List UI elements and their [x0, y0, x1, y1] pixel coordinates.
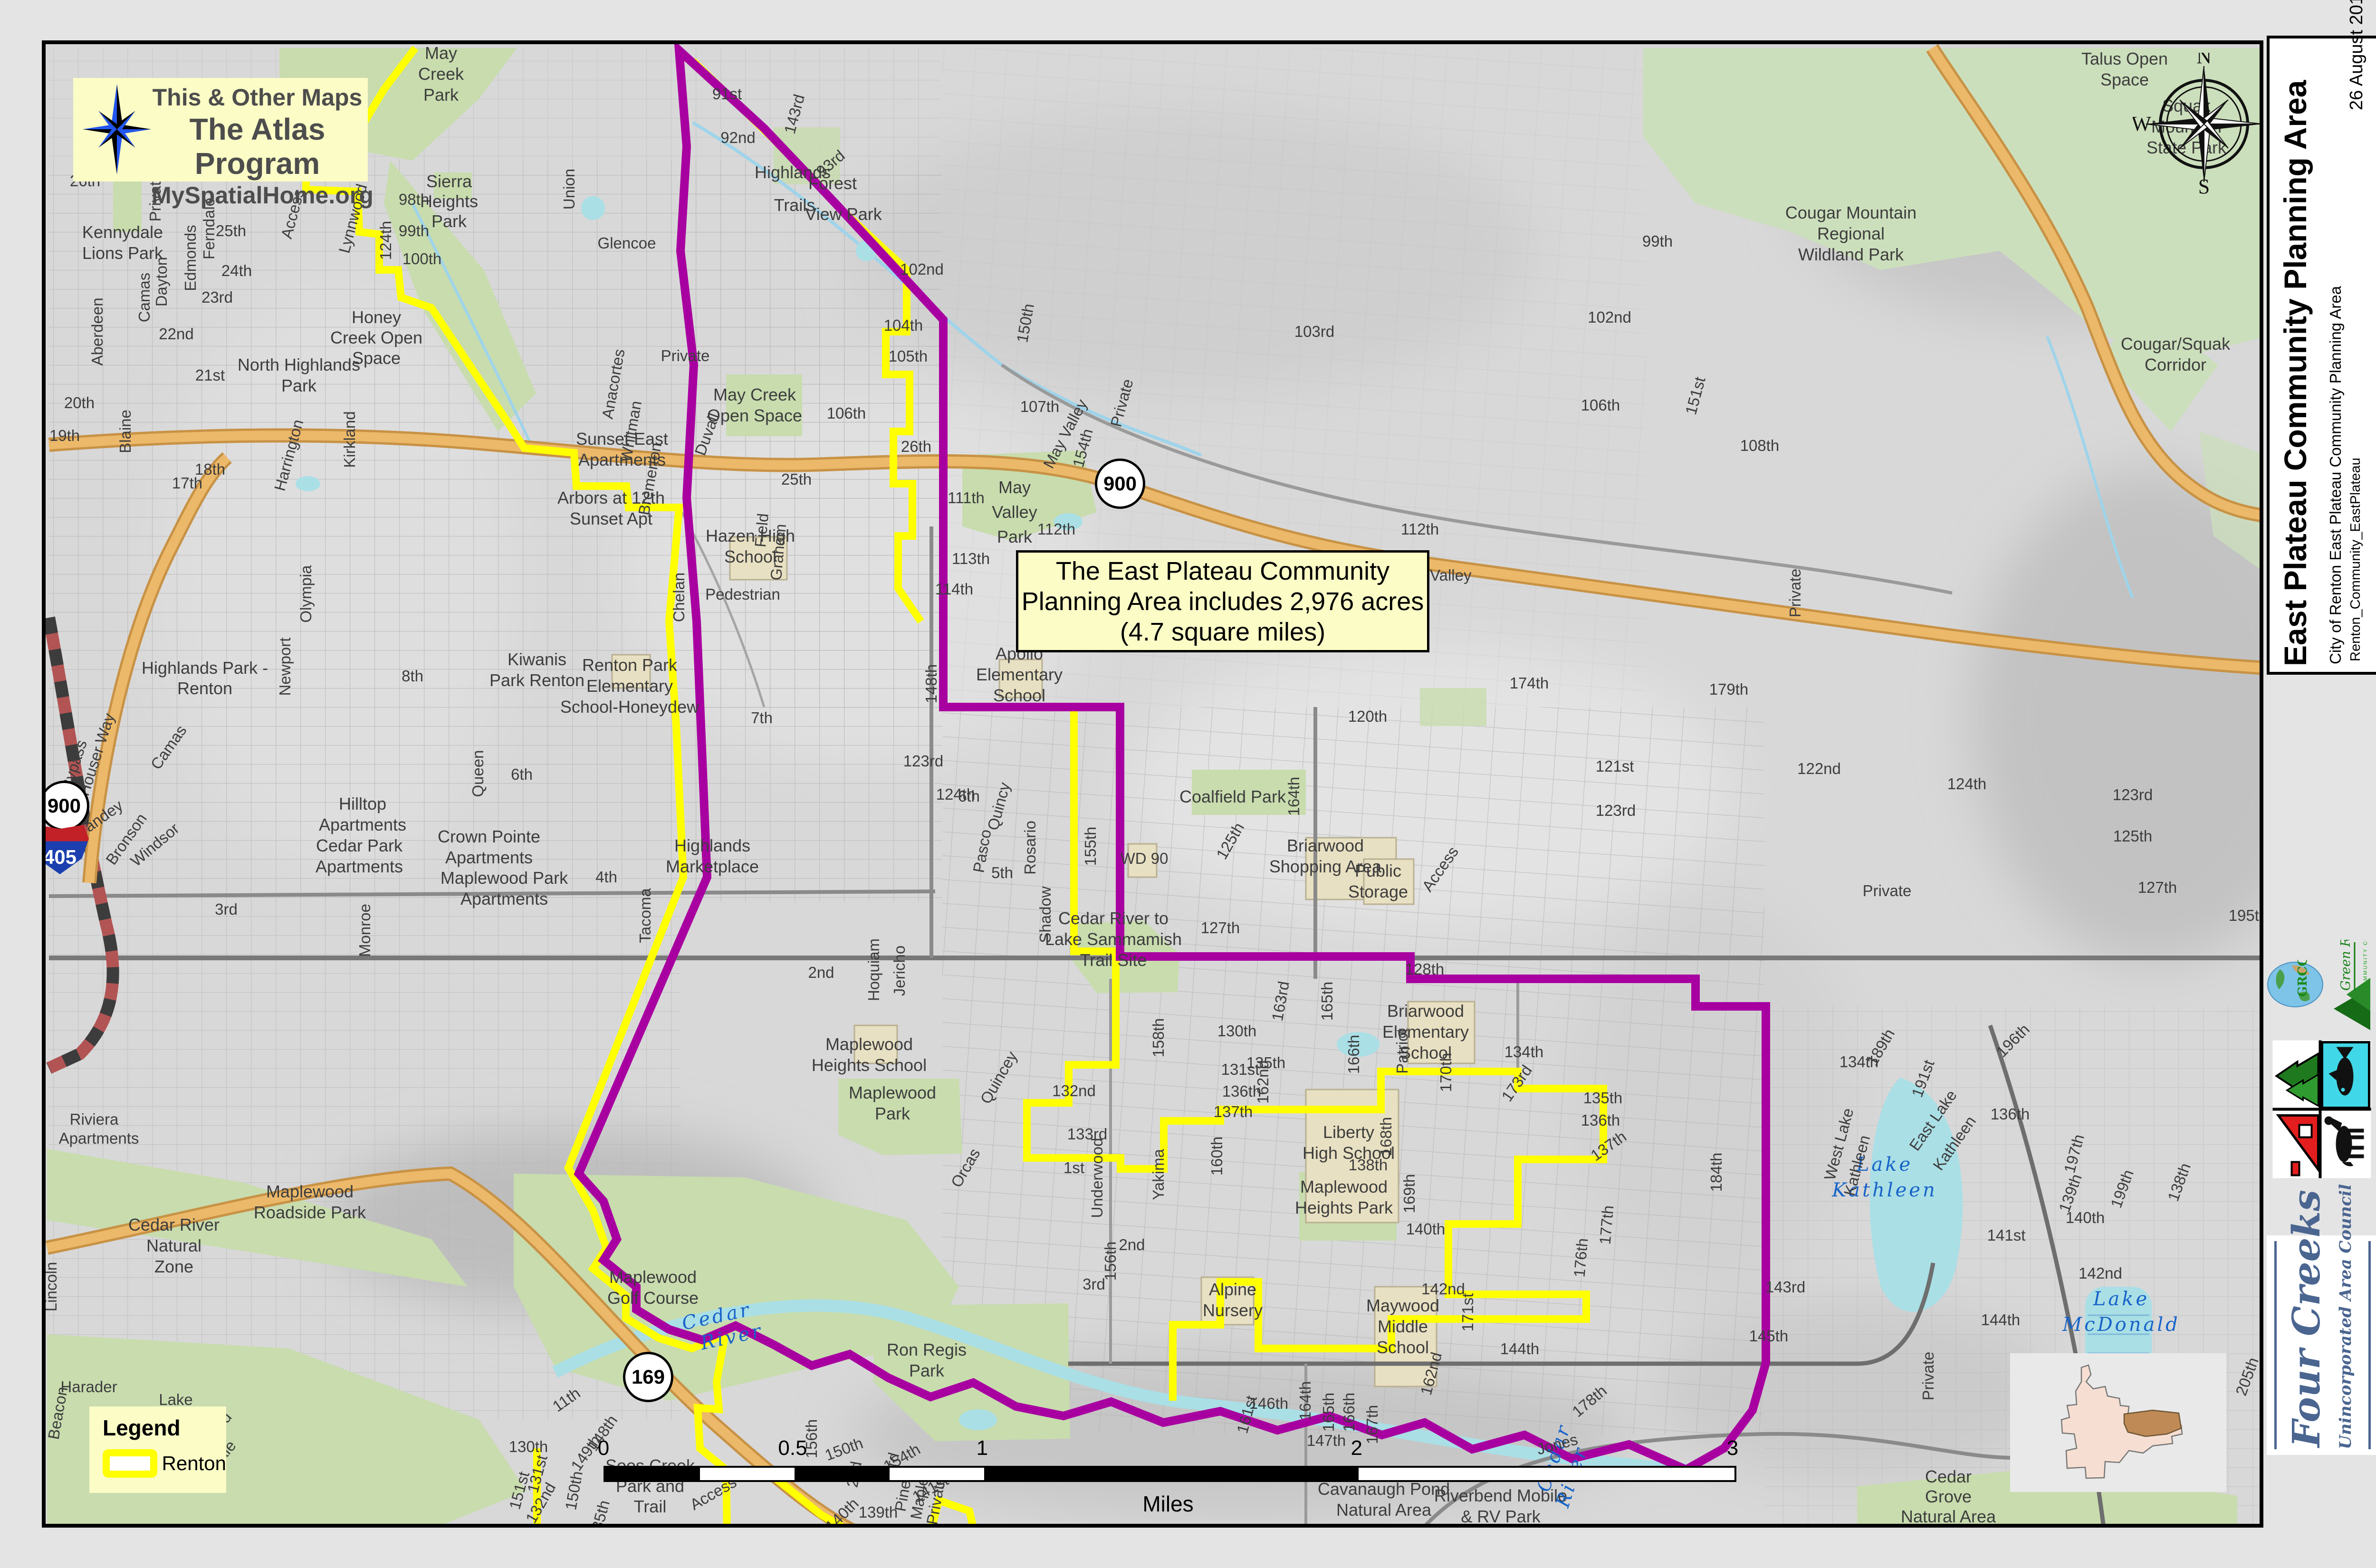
- callout-line3: (4.7 square miles): [1018, 617, 1427, 647]
- map-label: 136th: [1222, 1082, 1262, 1100]
- map-label: Cougar/Squak: [2121, 334, 2230, 354]
- callout-line2: Planning Area includes 2,976 acres: [1018, 586, 1427, 617]
- map-label: Apartments: [460, 889, 548, 909]
- map-label: 112th: [1401, 520, 1439, 538]
- map-label: 25th: [216, 222, 246, 240]
- map-label: 7th: [751, 709, 773, 727]
- map-label: 128th: [1405, 960, 1445, 978]
- scale-unit: Miles: [1142, 1491, 1193, 1517]
- map-label: 25th: [781, 470, 812, 488]
- map-label: Public: [1355, 861, 1401, 881]
- map-label: 107th: [1020, 398, 1060, 416]
- map-label: Park Renton: [489, 670, 584, 690]
- grcc-gis-logo: GRCC GIS: [2266, 960, 2328, 1010]
- map-title: East Plateau Community Planning Area: [2277, 80, 2313, 666]
- map-label: 136th: [1581, 1111, 1620, 1129]
- map-label: Pedestrian: [705, 585, 780, 603]
- map-label: Newport: [276, 638, 294, 696]
- map-label: Heights Park: [1295, 1198, 1393, 1218]
- map-label: 144th: [1981, 1311, 2021, 1329]
- map-label: Renton Park: [582, 655, 677, 675]
- map-label: 3rd: [215, 900, 238, 918]
- legend-item-label: Renton: [162, 1452, 226, 1475]
- map-label: 4th: [595, 868, 617, 886]
- green-river-college: COMMUNITY COLLEGE: [2363, 940, 2368, 991]
- map-label: Maplewood: [849, 1083, 936, 1103]
- map-label: 158th: [1150, 1018, 1168, 1058]
- compass-n: N: [2196, 53, 2212, 68]
- map-label: Rosario: [1021, 821, 1039, 875]
- map-label: Honey: [352, 307, 401, 327]
- map-label: View Park: [805, 204, 881, 224]
- map-label: Apartments: [445, 848, 533, 868]
- map-label: 166th: [1340, 1393, 1358, 1432]
- map-filename: Renton_Community_EastPlateau: [2348, 458, 2364, 661]
- map-label: 179th: [1709, 680, 1749, 698]
- green-river-name: Green River: [2338, 940, 2353, 991]
- map-label: 19th: [49, 427, 80, 445]
- map-label: Private: [1919, 1352, 1937, 1401]
- scale-segment: [795, 1468, 890, 1480]
- map-label: Cedar River to: [1058, 908, 1169, 928]
- map-label: Wildland Park: [1798, 245, 1904, 265]
- map-label: WD 90: [1121, 850, 1169, 868]
- map-label: 99th: [399, 222, 429, 240]
- map-label: 127th: [1201, 919, 1240, 937]
- state-route-shield-900: 900: [1095, 459, 1145, 509]
- scale-segment: [1359, 1468, 1734, 1480]
- map-label: Apartments: [316, 857, 403, 877]
- map-label: 155th: [1082, 827, 1100, 866]
- map-label: 138th: [1349, 1156, 1388, 1174]
- map-label: 148th: [922, 664, 940, 704]
- map-label: Renton: [177, 679, 232, 698]
- map-label: 124th: [377, 221, 395, 260]
- map-document: MayCreekParkSierraHeightsParkHoneyCreek …: [0, 0, 2376, 1568]
- scale-segment: [700, 1468, 795, 1480]
- map-label: Cougar Mountain: [1785, 203, 1916, 223]
- map-label: 123rd: [1596, 802, 1636, 820]
- map-label: Crown Pointe: [438, 827, 540, 847]
- map-label: Edmonds: [182, 225, 200, 291]
- map-label: 103rd: [1294, 323, 1334, 341]
- map-label: Cedar: [1925, 1467, 1972, 1487]
- map-label: May: [998, 478, 1031, 497]
- map-label: 144th: [1500, 1340, 1540, 1358]
- rule-left: [2274, 1241, 2277, 1449]
- grcc-gis-text: GRCC GIS: [2296, 960, 2310, 997]
- map-label: 130th: [509, 1438, 548, 1456]
- map-label: 122nd: [1797, 760, 1841, 778]
- map-label: 168th: [1377, 1117, 1395, 1157]
- compass-rose: N E S W: [2133, 53, 2263, 195]
- map-label: 120th: [1348, 708, 1388, 726]
- map-label: 127th: [2138, 879, 2177, 897]
- map-label: Highlands: [674, 836, 750, 856]
- map-label: Jericho: [891, 946, 909, 996]
- map-label: North Highlands: [238, 355, 360, 375]
- map-label: Chelan: [670, 573, 688, 622]
- scale-segment: [984, 1468, 1359, 1480]
- map-label: 8th: [402, 667, 423, 685]
- map-label: 114th: [935, 580, 973, 598]
- map-label: Regional: [1817, 224, 1885, 244]
- atlas-line1: This & Other Maps: [152, 83, 363, 112]
- map-label: Cedar Park: [316, 836, 402, 856]
- map-label: Kennydale: [82, 222, 163, 242]
- map-label: 165th: [1318, 982, 1336, 1021]
- map-label: May Creek: [713, 385, 796, 405]
- legend-title: Legend: [103, 1415, 226, 1441]
- scale-tick: 0.5: [778, 1436, 807, 1460]
- map-label: 143rd: [1765, 1278, 1805, 1296]
- map-label: 91st: [712, 85, 742, 103]
- map-label: Briarwood: [1287, 836, 1364, 856]
- map-label: Park: [909, 1361, 944, 1381]
- map-label: Middle: [1378, 1317, 1428, 1337]
- map-label: Camas: [135, 273, 153, 323]
- map-date: 26 August 2014: [2347, 0, 2367, 110]
- map-label: 171st: [1459, 1293, 1477, 1332]
- atlas-logo-box: This & Other Maps The Atlas Program MySp…: [73, 78, 368, 182]
- map-label: 5th: [991, 864, 1013, 882]
- scale-tick: 1: [977, 1436, 988, 1460]
- scale-tick: 3: [1727, 1436, 1738, 1460]
- map-label: 142nd: [2079, 1264, 2122, 1282]
- map-label: Maplewood: [1300, 1177, 1388, 1197]
- map-graphics: [46, 44, 2263, 1528]
- map-label: Park: [997, 527, 1032, 547]
- map-label: Riviera: [70, 1110, 119, 1128]
- map-label: 2nd: [808, 964, 834, 982]
- map-label: 24th: [221, 262, 252, 280]
- map-label: Apartments: [319, 815, 406, 835]
- map-label: Ron Regis: [887, 1340, 967, 1360]
- state-route-shield-169: 169: [623, 1352, 673, 1402]
- compass-w: W: [2133, 112, 2151, 135]
- map-label: Glencoe: [598, 234, 656, 252]
- map-label: 137th: [1214, 1103, 1253, 1121]
- map-label: Forest: [808, 173, 857, 193]
- map-label: Maplewood: [266, 1182, 354, 1202]
- map-label: 26th: [901, 438, 931, 456]
- map-label: Patriot: [1393, 1028, 1411, 1073]
- map-label: 177th: [1596, 1205, 1617, 1245]
- map-label: 104th: [884, 316, 923, 335]
- map-label: Heights School: [812, 1055, 927, 1075]
- map-label: 135th: [1246, 1054, 1286, 1072]
- map-label: Olympia: [297, 565, 315, 622]
- map-label: 106th: [827, 404, 866, 422]
- map-label: 17th: [172, 474, 202, 492]
- map-label: 105th: [889, 347, 928, 365]
- map-label: School-Honeydew: [560, 697, 699, 717]
- map-label: Dayton: [153, 257, 171, 307]
- map-label: Zone: [154, 1257, 193, 1277]
- map-label: 102nd: [1588, 308, 1631, 326]
- renton-boundary-symbol: [103, 1449, 157, 1478]
- map-label: 184th: [1707, 1153, 1725, 1192]
- map-label: Trail Site: [1080, 950, 1147, 970]
- map-label: Grove: [1925, 1487, 1972, 1507]
- scale-segment: [605, 1468, 700, 1480]
- map-label: 140th: [2066, 1209, 2105, 1227]
- map-label: Private: [1863, 882, 1912, 900]
- map-label: 124th: [1947, 775, 1987, 793]
- map-label: Hoquiam: [865, 938, 883, 1001]
- map-label: 98th: [399, 191, 429, 209]
- map-label: 140th: [1406, 1220, 1446, 1238]
- map-label: 21st: [195, 366, 225, 384]
- map-label: 165th: [1320, 1393, 1338, 1432]
- atlas-line2: The Atlas Program: [152, 112, 363, 181]
- scale-tick: 0: [598, 1436, 609, 1460]
- map-label: 142nd: [1421, 1280, 1465, 1298]
- map-label: Creek: [418, 64, 464, 84]
- map-label: Sierra: [426, 172, 472, 191]
- map-label: Golf Course: [607, 1288, 699, 1308]
- compass-s: S: [2198, 175, 2210, 195]
- map-label: Nursery: [1203, 1300, 1263, 1320]
- map-label: 135th: [1583, 1089, 1623, 1107]
- map-label: 176th: [1570, 1237, 1591, 1278]
- map-label: 134th: [1504, 1043, 1544, 1061]
- map-label: 124th: [936, 785, 976, 803]
- map-label: Kiwanis: [508, 650, 566, 669]
- map-label: Private: [661, 347, 710, 365]
- map-label: Yakima: [1150, 1149, 1168, 1200]
- map-label: 102nd: [900, 260, 944, 278]
- map-label: McDonald: [2062, 1314, 2180, 1336]
- map-label: Elementary: [976, 665, 1063, 685]
- map-label: Park: [875, 1104, 910, 1124]
- map-label: 125th: [2113, 827, 2153, 845]
- scale-segment: [890, 1468, 984, 1480]
- map-label: 164th: [1285, 777, 1303, 816]
- map-label: Private: [1786, 569, 1804, 618]
- green-river-college-logo: Green River COMMUNITY COLLEGE: [2325, 940, 2376, 1033]
- map-label: Lake Sammamish: [1045, 929, 1182, 949]
- map-label: Park: [423, 85, 459, 105]
- map-label: Corridor: [2145, 355, 2206, 375]
- map-label: 166th: [1345, 1035, 1363, 1074]
- map-subtitle: City of Renton East Plateau Community Pl…: [2327, 286, 2345, 664]
- map-label: 169th: [1400, 1174, 1418, 1214]
- map-label: Queen: [469, 750, 487, 797]
- map-label: 92nd: [720, 129, 755, 147]
- callout-line1: The East Plateau Community: [1018, 556, 1427, 586]
- map-label: Lions Park: [82, 243, 163, 263]
- map-label: 121st: [1596, 757, 1634, 775]
- map-label: 100th: [402, 250, 442, 268]
- map-label: Hilltop: [339, 794, 386, 814]
- map-label: 108th: [1740, 437, 1780, 455]
- map-label: 123rd: [903, 752, 943, 770]
- legend-item-renton[interactable]: Renton: [103, 1449, 226, 1478]
- map-label: 170th: [1437, 1053, 1455, 1092]
- map-label: 6th: [511, 765, 533, 784]
- map-label: Lake: [2093, 1288, 2149, 1310]
- four-creeks-council: Unincorporated Area Council: [2336, 1184, 2355, 1449]
- map-label: Maplewood: [825, 1034, 913, 1054]
- map-label: Apartments: [59, 1129, 139, 1147]
- map-label: 156th: [1102, 1242, 1120, 1281]
- map-label: Aberdeen: [88, 297, 106, 365]
- four-creeks-name: Four Creeks: [2284, 1190, 2328, 1447]
- map-label: 106th: [1581, 396, 1620, 414]
- map-label: Maplewood Park: [441, 868, 568, 888]
- map-label: 174th: [1510, 674, 1549, 692]
- map-label: 164th: [1296, 1381, 1314, 1421]
- map-label: Kirkland: [341, 411, 359, 468]
- map-label: Briarwood: [1387, 1001, 1464, 1021]
- map-label: 1st: [1063, 1159, 1084, 1177]
- scale-bar-segments: [604, 1466, 1736, 1482]
- map-label: Monroe: [356, 904, 374, 957]
- map-label: 141st: [1987, 1226, 2026, 1244]
- map-label: 23rd: [201, 288, 233, 306]
- map-label: Natural: [146, 1236, 201, 1256]
- map-label: 22nd: [159, 325, 193, 343]
- map-label: Shadow: [1036, 886, 1054, 943]
- map-label: Lincoln: [42, 1262, 60, 1312]
- map-label: Tacoma: [636, 888, 654, 943]
- map-label: Park: [281, 376, 316, 396]
- map-label: 99th: [1642, 232, 1673, 250]
- map-label: Marketplace: [666, 857, 759, 877]
- map-label: 136th: [1991, 1105, 2030, 1123]
- map-label: 132nd: [1052, 1082, 1096, 1100]
- compass-star: [2146, 66, 2262, 182]
- map-label: School: [1377, 1338, 1429, 1358]
- map-label: Liberty: [1323, 1122, 1374, 1142]
- map-label: Natural Area: [1901, 1507, 1996, 1527]
- map-label: Roadside Park: [254, 1203, 366, 1223]
- map-label: 195th: [2229, 907, 2263, 925]
- scale-bar: 00.5123 Miles: [604, 1436, 1733, 1528]
- map-label: Park: [431, 211, 467, 231]
- map-label: Cedar River: [128, 1215, 220, 1235]
- map-label: Highlands Park -: [142, 658, 268, 678]
- map-label: Elementary: [586, 676, 673, 696]
- map-label: May: [425, 43, 457, 63]
- four-creeks-quadrant-logo: [2273, 1041, 2371, 1178]
- acreage-callout: The East Plateau Community Planning Area…: [1016, 550, 1429, 652]
- map-label: School: [993, 686, 1045, 706]
- map-label: Coalfield Park: [1179, 787, 1286, 807]
- map-label: 111th: [948, 489, 985, 507]
- compass-e: E: [2261, 112, 2263, 135]
- map-label: Open Space: [707, 406, 802, 426]
- map-label: 113th: [952, 550, 990, 568]
- map-label: Storage: [1348, 882, 1408, 902]
- map-label: Union: [560, 169, 578, 210]
- map-label: 160th: [1208, 1137, 1226, 1176]
- map-label: Blaine: [116, 410, 134, 453]
- scale-tick: 2: [1351, 1436, 1362, 1460]
- map-label: 2nd: [1119, 1236, 1145, 1254]
- map-label: Maplewood: [609, 1267, 697, 1287]
- atlas-compass-icon: [79, 82, 155, 177]
- map-label: Alpine: [1209, 1280, 1256, 1300]
- locator-inset: [2010, 1353, 2226, 1492]
- map-label: 130th: [1217, 1022, 1257, 1040]
- legend: Legend Renton: [89, 1406, 226, 1493]
- map-label: 112th: [1037, 520, 1075, 538]
- map-label: Maywood: [1366, 1296, 1439, 1316]
- map-label: 20th: [64, 394, 95, 412]
- map-label: 145th: [1749, 1327, 1789, 1345]
- rule-right: [2368, 1241, 2371, 1449]
- map-label: Valley: [992, 502, 1037, 522]
- map-label: Field: [751, 513, 772, 548]
- map-label: Underwood: [1088, 1138, 1106, 1218]
- map-label: 123rd: [2113, 786, 2153, 804]
- map-label: Creek Open: [330, 328, 422, 348]
- map-canvas[interactable]: MayCreekParkSierraHeightsParkHoneyCreek …: [42, 40, 2263, 1528]
- atlas-url[interactable]: MySpatialHome.org: [152, 181, 363, 210]
